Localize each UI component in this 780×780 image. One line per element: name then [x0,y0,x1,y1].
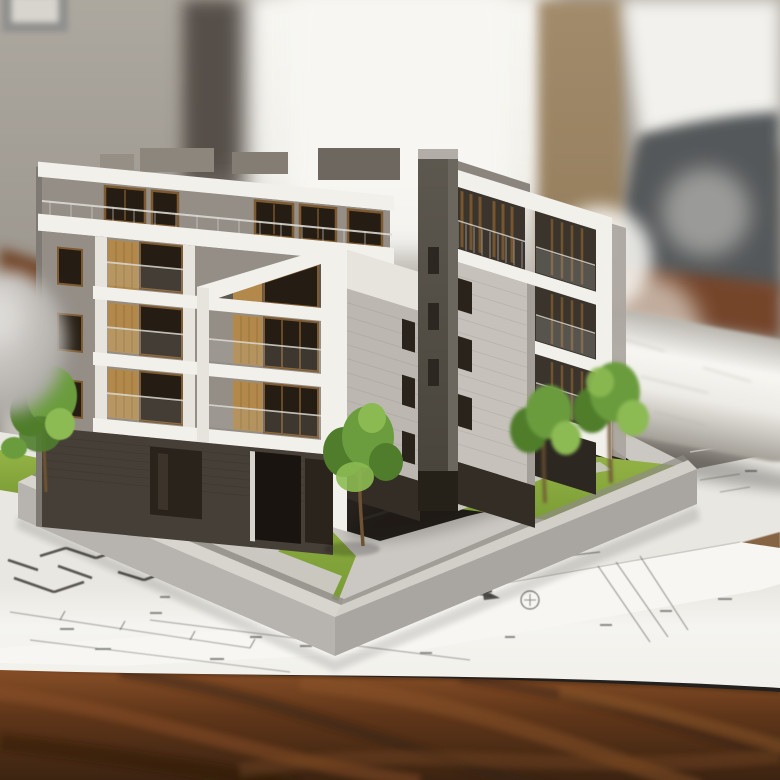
tower-slot [428,247,439,274]
slot-window [458,278,472,314]
entrance-door [255,451,301,543]
balcony-opening [107,368,183,424]
balcony-frame-a [93,236,197,442]
slot-window [458,336,472,372]
tower-slot [428,303,439,330]
balcony-opening [107,302,183,358]
slot-window [402,375,415,409]
picture-frame [2,0,68,32]
bokeh-circle [662,168,750,256]
tower-base [418,471,458,511]
wing-siding-panel [447,259,535,486]
slot-window [402,319,415,353]
panel-edge-shade [527,283,535,485]
glass-reflection [158,453,168,510]
photo-stage: Architectural scale model of a modern wh… [0,0,780,780]
balcony-opening [107,239,183,294]
scene-photo [0,0,780,780]
picture-frame-mat [12,0,58,22]
ground-glazing [305,458,333,545]
elevator-tower [418,149,458,511]
tower-slot [428,359,439,386]
slot-window [458,394,472,430]
tower-cap [418,149,458,159]
slot-window [402,431,415,465]
desk [0,666,780,780]
ground-glazing [150,446,202,519]
entrance-column [250,451,255,541]
tower-side [448,159,458,471]
